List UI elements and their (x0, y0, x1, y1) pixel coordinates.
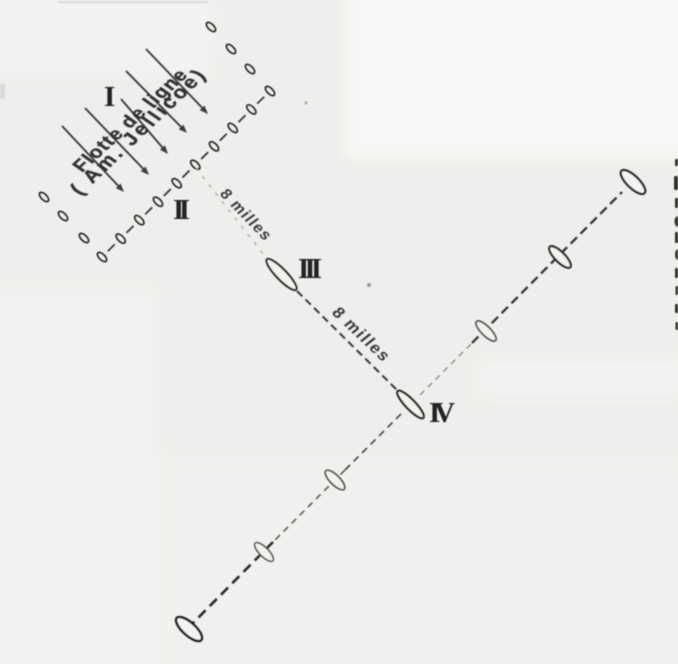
svg-text:I: I (104, 81, 115, 113)
svg-text:III: III (298, 253, 322, 285)
svg-text:IV: IV (429, 397, 455, 429)
svg-text:II: II (173, 194, 190, 226)
